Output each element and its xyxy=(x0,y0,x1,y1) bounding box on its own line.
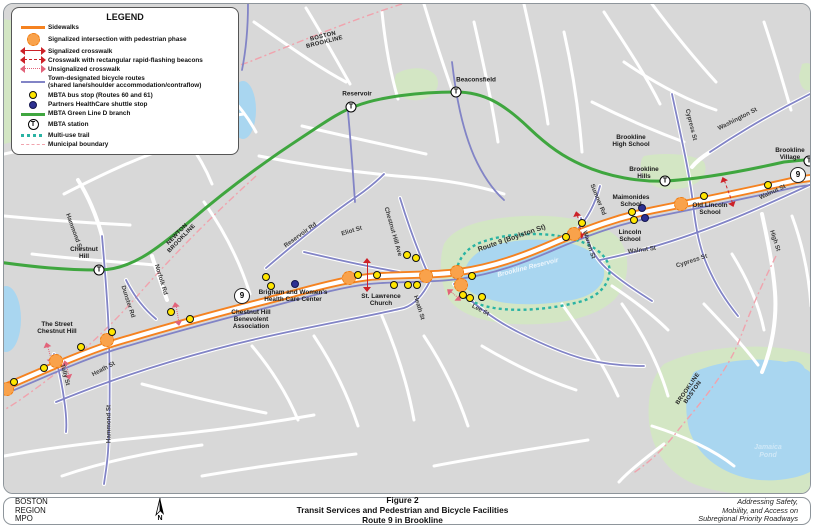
legend-item-municipal-boundary: Municipal boundary xyxy=(18,141,232,149)
mbta-station-icon: T xyxy=(28,119,39,130)
legend-title: LEGEND xyxy=(18,12,232,22)
signalized-intersection-icon xyxy=(27,33,40,46)
figure-page: { "legend": { "title": "LEGEND", "items"… xyxy=(0,0,816,528)
north-label: N xyxy=(157,515,162,521)
figure-subtitle: Route 9 in Brookline xyxy=(177,516,628,526)
legend-item-unsignalized-crosswalk: Unsignalized crosswalk xyxy=(18,66,232,74)
bus-stop-icon xyxy=(29,91,37,99)
signalized-crosswalk-icon xyxy=(20,50,46,52)
legend-item-signalized-intersection: Signalized intersection with pedestrian … xyxy=(18,33,232,46)
program-tagline: Addressing Safety, Mobility, and Access … xyxy=(628,498,798,524)
green-line-icon xyxy=(21,113,45,116)
legend-item-signalized-crosswalk: Signalized crosswalk xyxy=(18,48,232,56)
shuttle-stop-icon xyxy=(29,101,37,109)
legend-item-bicycle-routes: Town-designated bicycle routes (shared l… xyxy=(18,75,232,90)
figure-title-block: Figure 2 Transit Services and Pedestrian… xyxy=(177,496,628,525)
legend-item-bus-stop: MBTA bus stop (Routes 60 and 61) xyxy=(18,91,232,99)
agency-name: BOSTON REGION MPO xyxy=(15,498,133,523)
legend: LEGEND Sidewalks Signalized intersection… xyxy=(11,7,239,155)
agency-line: MPO xyxy=(15,515,133,523)
multi-use-trail-icon xyxy=(21,134,45,137)
north-arrow: N xyxy=(151,497,177,526)
legend-item-shuttle-stop: Partners HealthCare shuttle stop xyxy=(18,101,232,109)
municipal-boundary-icon xyxy=(21,144,45,145)
bicycle-route-line-icon xyxy=(21,81,45,83)
north-arrow-icon: N xyxy=(151,497,169,521)
legend-item-mbta-station: T MBTA station xyxy=(18,119,232,130)
map-figure: 99TTTTTBOSTON BROOKLINENEWTON BROOKLINEB… xyxy=(3,3,811,494)
legend-item-sidewalks: Sidewalks xyxy=(18,24,232,32)
rrfb-crosswalk-icon xyxy=(20,59,46,61)
unsignalized-crosswalk-icon xyxy=(20,68,46,70)
footer: BOSTON REGION MPO N Figure 2 Transit Ser… xyxy=(3,497,811,525)
sidewalk-line-icon xyxy=(21,26,45,29)
legend-item-rrfb-crosswalk: Crosswalk with rectangular rapid-flashin… xyxy=(18,57,232,65)
tagline-line: Subregional Priority Roadways xyxy=(628,515,798,524)
legend-item-multi-use-trail: Multi-use trail xyxy=(18,132,232,140)
legend-item-green-line: MBTA Green Line D branch xyxy=(18,110,232,118)
